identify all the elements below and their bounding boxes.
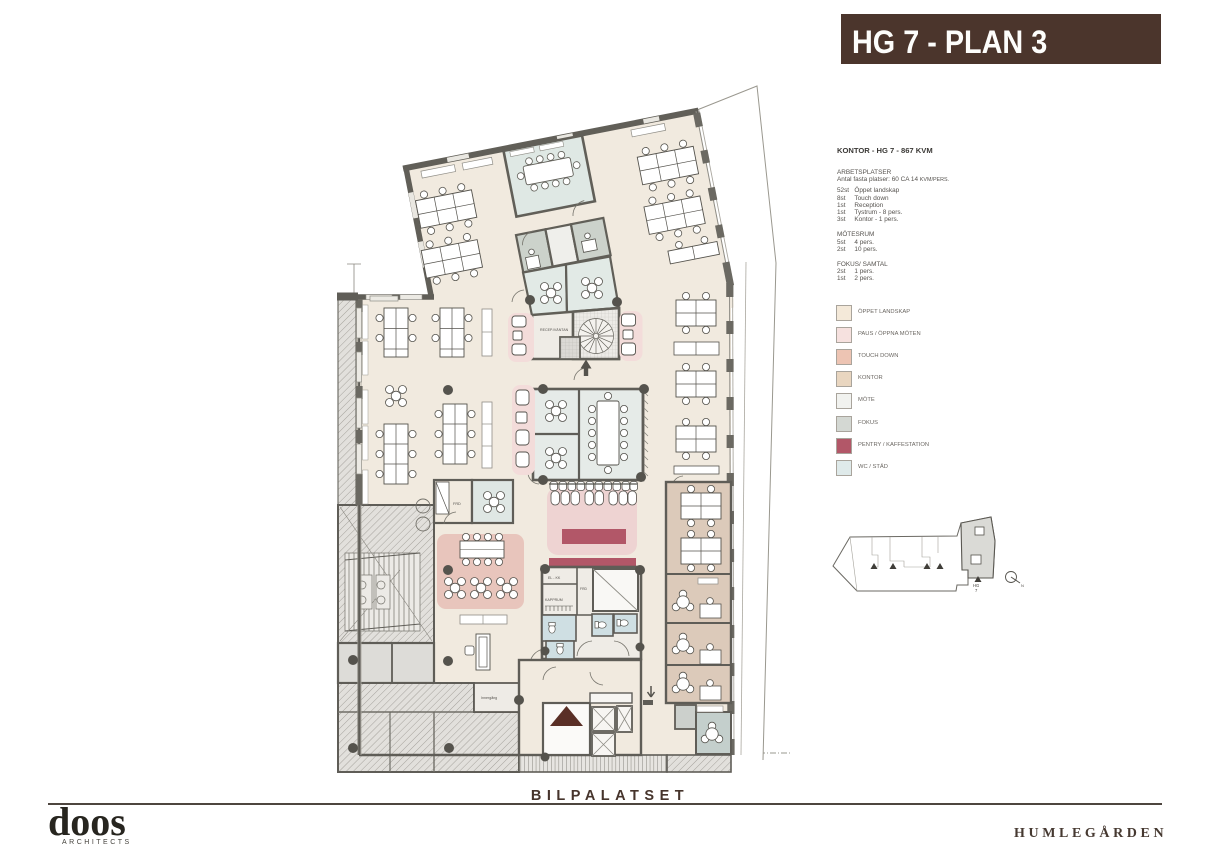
- svg-text:N: N: [1021, 583, 1024, 588]
- svg-text:7: 7: [975, 588, 978, 593]
- svg-text:RECEP./VÄNTAN: RECEP./VÄNTAN: [540, 328, 569, 332]
- svg-text:KAPPRUM: KAPPRUM: [545, 598, 563, 602]
- svg-text:EL - KK: EL - KK: [548, 576, 561, 580]
- svg-text:Innergång: Innergång: [481, 696, 497, 700]
- svg-text:FRD: FRD: [453, 502, 461, 506]
- svg-text:FRD: FRD: [580, 587, 588, 591]
